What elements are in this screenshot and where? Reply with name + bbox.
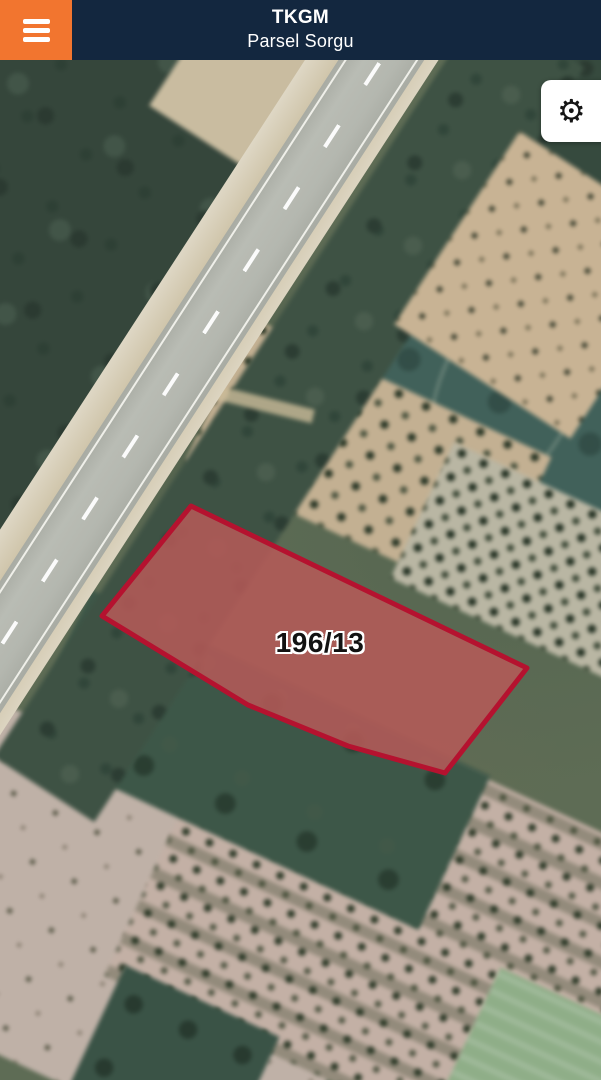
map-settings-button[interactable]: ⚙ bbox=[541, 80, 601, 142]
tkgm-parcel-query-app: 196/13 ⚙ TKGM Parsel Sorgu bbox=[0, 0, 601, 1080]
hamburger-menu-icon bbox=[23, 19, 50, 24]
page-title: TKGM bbox=[272, 8, 329, 29]
app-header: TKGM Parsel Sorgu bbox=[0, 0, 601, 60]
gear-icon: ⚙ bbox=[557, 95, 586, 127]
page-subtitle: Parsel Sorgu bbox=[247, 32, 353, 52]
menu-button[interactable] bbox=[0, 0, 72, 60]
parcel-label: 196/13 bbox=[276, 627, 365, 659]
parcel-overlay bbox=[0, 60, 601, 1080]
map-canvas[interactable]: 196/13 ⚙ bbox=[0, 60, 601, 1080]
